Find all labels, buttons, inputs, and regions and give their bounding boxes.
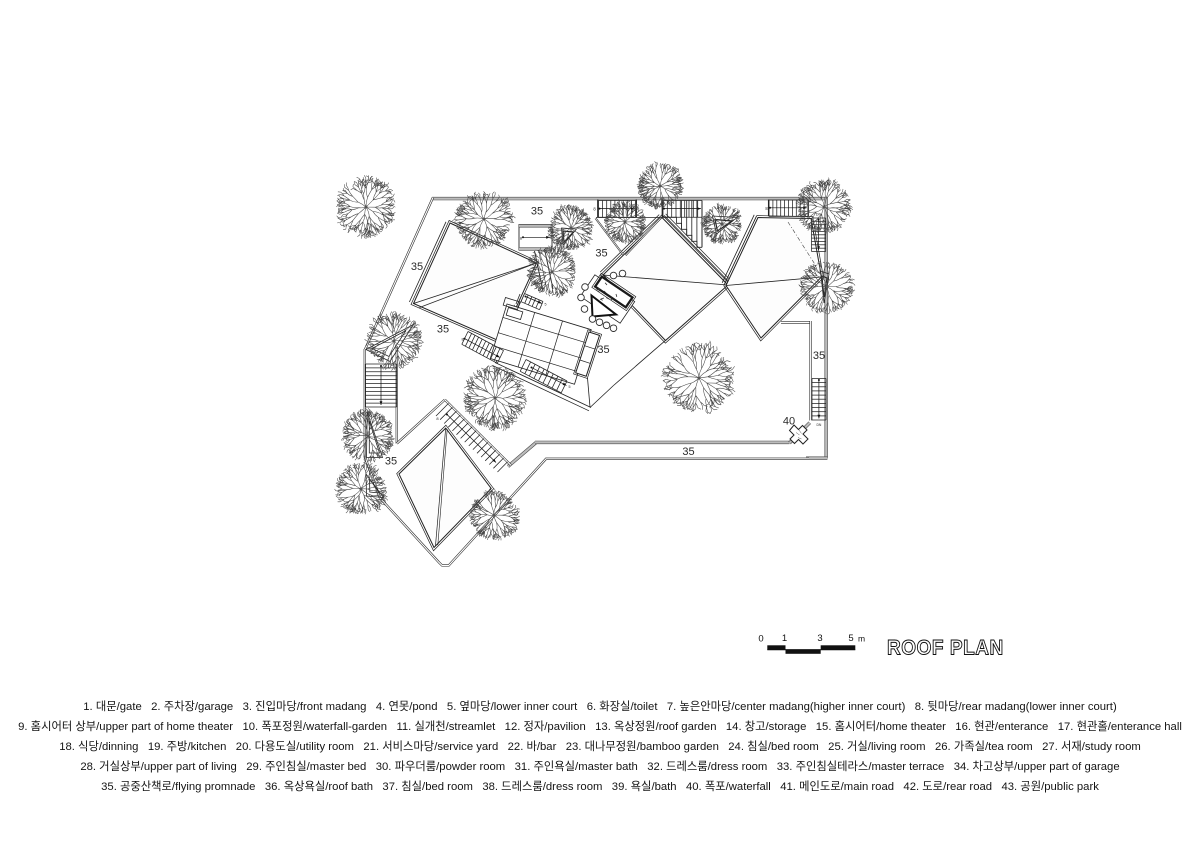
svg-text:35: 35 [411,261,423,273]
svg-text:35: 35 [597,344,609,356]
svg-text:35: 35 [813,350,825,362]
svg-text:3: 3 [817,633,822,644]
svg-text:5: 5 [848,633,853,644]
svg-text:35: 35 [531,206,543,218]
svg-text:35: 35 [595,248,607,260]
svg-text:0: 0 [758,634,763,645]
svg-text:8: 8 [765,206,768,211]
svg-text:5: 5 [545,303,547,307]
svg-text:ROOF PLAN: ROOF PLAN [887,636,1004,659]
svg-text:35: 35 [682,446,694,458]
svg-text:8: 8 [461,338,463,342]
svg-text:5: 5 [569,385,571,389]
svg-text:DN: DN [816,423,821,427]
svg-text:8: 8 [593,207,596,212]
svg-text:35: 35 [385,455,397,467]
svg-text:35: 35 [437,324,449,336]
svg-text:8: 8 [436,416,439,421]
svg-text:m: m [858,634,865,644]
svg-text:40: 40 [783,416,795,428]
svg-text:1: 1 [782,633,787,644]
